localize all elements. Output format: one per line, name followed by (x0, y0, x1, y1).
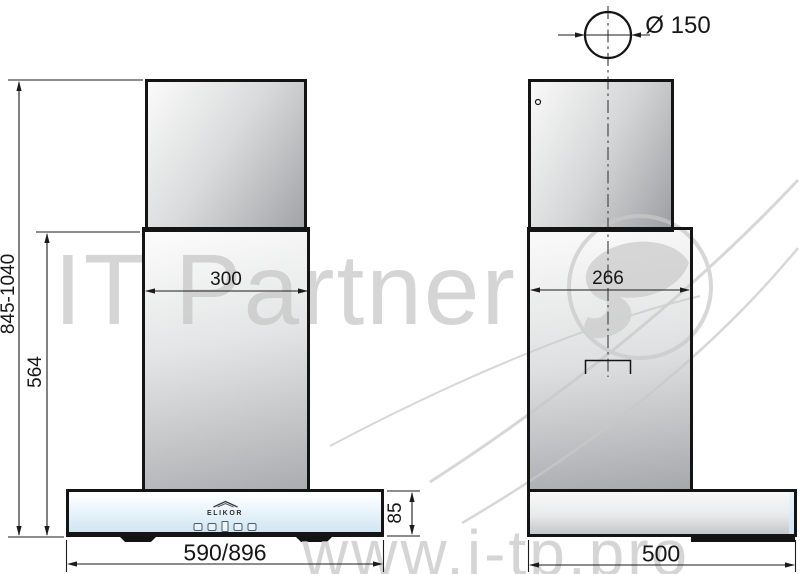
dim-hood-height-label: 85 (385, 502, 407, 523)
dimension-arrows (16, 32, 795, 567)
dim-hood-depth-label: 500 (642, 541, 680, 568)
dim-hood-width-label: 590/896 (183, 540, 266, 567)
dimension-drawing: ELIKOR IT Partner www.i-tp.pro (0, 0, 800, 574)
dim-chimney-width-label: 300 (210, 269, 242, 291)
drawing-lines (0, 0, 800, 574)
dim-total-height-label: 845-1040 (0, 254, 20, 334)
dim-body-height-label: 564 (25, 356, 47, 388)
screw-hole (536, 100, 541, 105)
object-outlines (68, 81, 796, 536)
dim-duct-diameter-label: Ø 150 (645, 12, 710, 40)
dim-chimney-depth-label: 266 (592, 268, 624, 290)
